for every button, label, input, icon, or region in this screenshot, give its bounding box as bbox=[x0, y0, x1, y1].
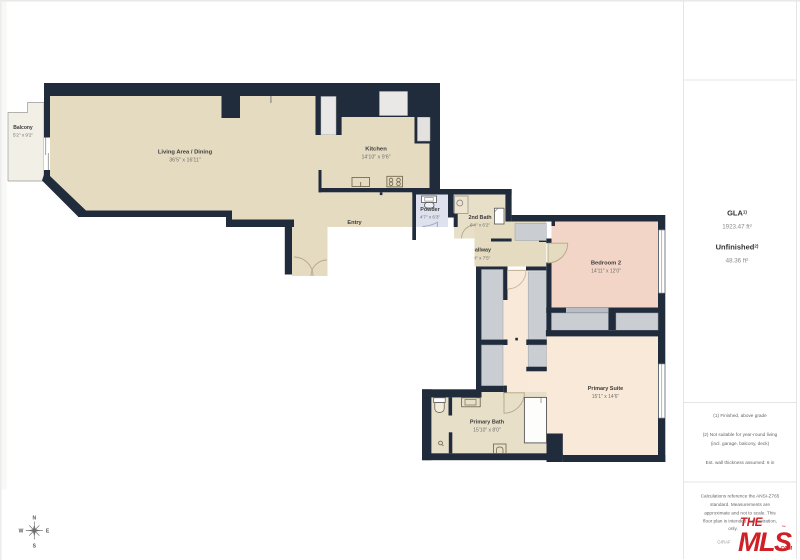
svg-text:Primary Bath: Primary Bath bbox=[470, 420, 505, 426]
svg-text:GLA1): GLA1) bbox=[727, 209, 747, 218]
svg-text:Primary Suite: Primary Suite bbox=[588, 386, 623, 392]
svg-text:Powder: Powder bbox=[420, 207, 440, 213]
svg-text:standard. Measurements are: standard. Measurements are bbox=[710, 502, 770, 507]
svg-text:Living Area / Dining: Living Area / Dining bbox=[158, 150, 213, 156]
svg-text:W: W bbox=[19, 529, 24, 535]
svg-text:5'2" x 9'2": 5'2" x 9'2" bbox=[13, 133, 33, 138]
svg-text:approximate and not to scale.: approximate and not to scale. This bbox=[704, 511, 776, 516]
svg-text:MLS: MLS bbox=[738, 527, 792, 557]
svg-text:Balcony: Balcony bbox=[13, 125, 33, 131]
svg-text:(incl. garage, balcony, deck): (incl. garage, balcony, deck) bbox=[711, 441, 770, 446]
svg-text:15'1" x 14'6": 15'1" x 14'6" bbox=[592, 394, 620, 400]
svg-text:1923.47 ft²: 1923.47 ft² bbox=[722, 224, 752, 231]
svg-text:Bedroom 2: Bedroom 2 bbox=[591, 261, 621, 267]
svg-text:N: N bbox=[32, 516, 36, 522]
svg-text:(2) Not suitable for year-roun: (2) Not suitable for year-round living bbox=[703, 432, 778, 437]
svg-text:Entry: Entry bbox=[347, 220, 362, 226]
svg-text:™: ™ bbox=[782, 525, 786, 530]
svg-text:only.: only. bbox=[728, 526, 738, 531]
svg-text:Est. wall thickness assumed: 6: Est. wall thickness assumed: 6 in bbox=[706, 460, 775, 465]
svg-text:GIRAF: GIRAF bbox=[717, 540, 731, 545]
svg-text:E: E bbox=[46, 529, 50, 535]
svg-text:Calculations reference the ANS: Calculations reference the ANSI-Z765 bbox=[701, 494, 780, 499]
svg-text:4'7" x 6'3": 4'7" x 6'3" bbox=[420, 215, 440, 220]
svg-text:Unfinished2): Unfinished2) bbox=[716, 243, 759, 252]
svg-text:(1) Finished, above grade: (1) Finished, above grade bbox=[713, 413, 767, 418]
svg-text:Kitchen: Kitchen bbox=[365, 147, 387, 153]
svg-text:14'11" x 12'0": 14'11" x 12'0" bbox=[591, 269, 621, 275]
svg-text:48.36 ft²: 48.36 ft² bbox=[726, 258, 749, 265]
svg-text:6'4" x 6'2": 6'4" x 6'2" bbox=[470, 223, 490, 228]
svg-text:2nd Bath: 2nd Bath bbox=[468, 215, 491, 221]
svg-text:.COM: .COM bbox=[779, 546, 793, 552]
svg-text:14'10" x 9'6": 14'10" x 9'6" bbox=[361, 155, 390, 161]
svg-text:S: S bbox=[33, 544, 37, 550]
svg-text:36'5" x 16'11": 36'5" x 16'11" bbox=[169, 158, 201, 164]
svg-text:15'10" x 8'0": 15'10" x 8'0" bbox=[473, 428, 501, 434]
